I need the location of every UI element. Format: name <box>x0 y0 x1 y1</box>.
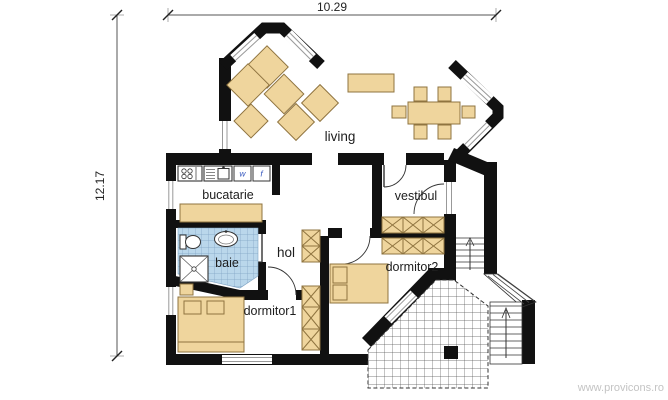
dining-furniture <box>348 74 475 139</box>
fridge-cabinet: f <box>253 166 270 181</box>
kitchen-counter <box>180 204 262 222</box>
dining-chair <box>392 106 406 118</box>
nightstand <box>180 284 193 295</box>
floor-plan-page: 10.29 12.17 <box>0 0 668 400</box>
coffee-table <box>234 104 268 138</box>
pillow <box>184 301 201 314</box>
pillow <box>207 301 224 314</box>
dining-chair <box>438 87 451 101</box>
exterior-stairs <box>490 302 522 364</box>
room-label-bucatarie: bucatarie <box>202 188 253 202</box>
watermark-text: www.provicons.ro <box>577 382 664 394</box>
hol-closet <box>302 230 320 262</box>
dimension-width-value: 10.29 <box>317 0 347 14</box>
dining-chair <box>414 87 427 101</box>
dining-chair <box>462 106 475 118</box>
dining-chair <box>438 125 451 139</box>
room-label-dormitor2: dormitor2 <box>386 260 439 274</box>
dining-table <box>408 102 460 124</box>
shower-icon <box>180 256 208 282</box>
terrace-column <box>444 346 458 359</box>
kitchen-sink-icon <box>204 166 232 181</box>
room-label-dormitor1: dormitor1 <box>244 304 297 318</box>
sideboard <box>348 74 394 92</box>
washer-label: w <box>239 169 246 179</box>
washer-cabinet: w <box>234 166 251 181</box>
pillow <box>333 285 347 300</box>
room-label-hol: hol <box>277 245 295 260</box>
room-label-vestibul: vestibul <box>395 189 437 203</box>
floor-plan-drawing: 10.29 12.17 <box>0 0 668 400</box>
dimension-left <box>110 10 124 361</box>
toilet-icon <box>180 235 201 249</box>
pillow <box>333 267 347 283</box>
room-label-baie: baie <box>215 256 239 270</box>
interior-stairs <box>456 238 484 270</box>
stove-icon <box>178 166 202 181</box>
dimension-height-value: 12.17 <box>93 171 107 201</box>
dining-chair <box>414 125 427 139</box>
room-label-living: living <box>325 129 356 144</box>
